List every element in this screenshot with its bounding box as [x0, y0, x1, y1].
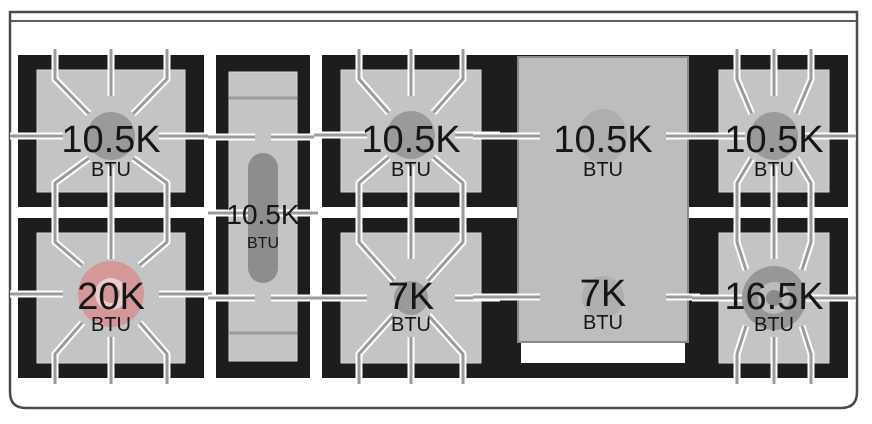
griddle-lower-inset: [521, 343, 685, 363]
burner-top-right[interactable]: 10.5K BTU: [692, 49, 856, 213]
burner-btu-unit: BTU: [754, 159, 794, 181]
burner-bottom-right[interactable]: 16.5K BTU: [692, 212, 856, 384]
burner-btu-unit: BTU: [91, 159, 131, 181]
burner-btu-value: 20K: [77, 276, 145, 318]
burner-top-left[interactable]: 10.5K BTU: [10, 49, 212, 213]
burner-btu-unit: BTU: [583, 312, 623, 334]
burner-btu-unit: BTU: [391, 159, 431, 181]
griddle-section[interactable]: 10.5K BTU 7K BTU: [473, 55, 732, 378]
burner-btu-unit: BTU: [91, 314, 131, 336]
burner-btu-value: 7K: [580, 273, 626, 315]
cooktop-stage: 10.5K BTU 20K BTU 10.5: [0, 0, 872, 424]
burner-btu-unit: BTU: [247, 235, 279, 252]
burner-btu-value: 10.5K: [226, 199, 299, 230]
burner-btu-value: 10.5K: [553, 119, 652, 161]
burner-center-left-oval[interactable]: 10.5K BTU: [208, 55, 318, 378]
burner-top-middle[interactable]: 10.5K BTU: [314, 49, 508, 213]
burner-btu-value: 10.5K: [724, 119, 823, 161]
burner-btu-value: 16.5K: [724, 276, 823, 318]
burner-btu-value: 7K: [388, 276, 434, 318]
burner-btu-unit: BTU: [754, 314, 794, 336]
burner-btu-value: 10.5K: [361, 119, 460, 161]
burner-btu-unit: BTU: [391, 314, 431, 336]
burner-btu-unit: BTU: [583, 159, 623, 181]
burner-btu-value: 10.5K: [61, 119, 160, 161]
cooktop-diagram: 10.5K BTU 20K BTU 10.5: [0, 0, 872, 424]
burner-bottom-left[interactable]: 20K BTU: [10, 212, 212, 384]
